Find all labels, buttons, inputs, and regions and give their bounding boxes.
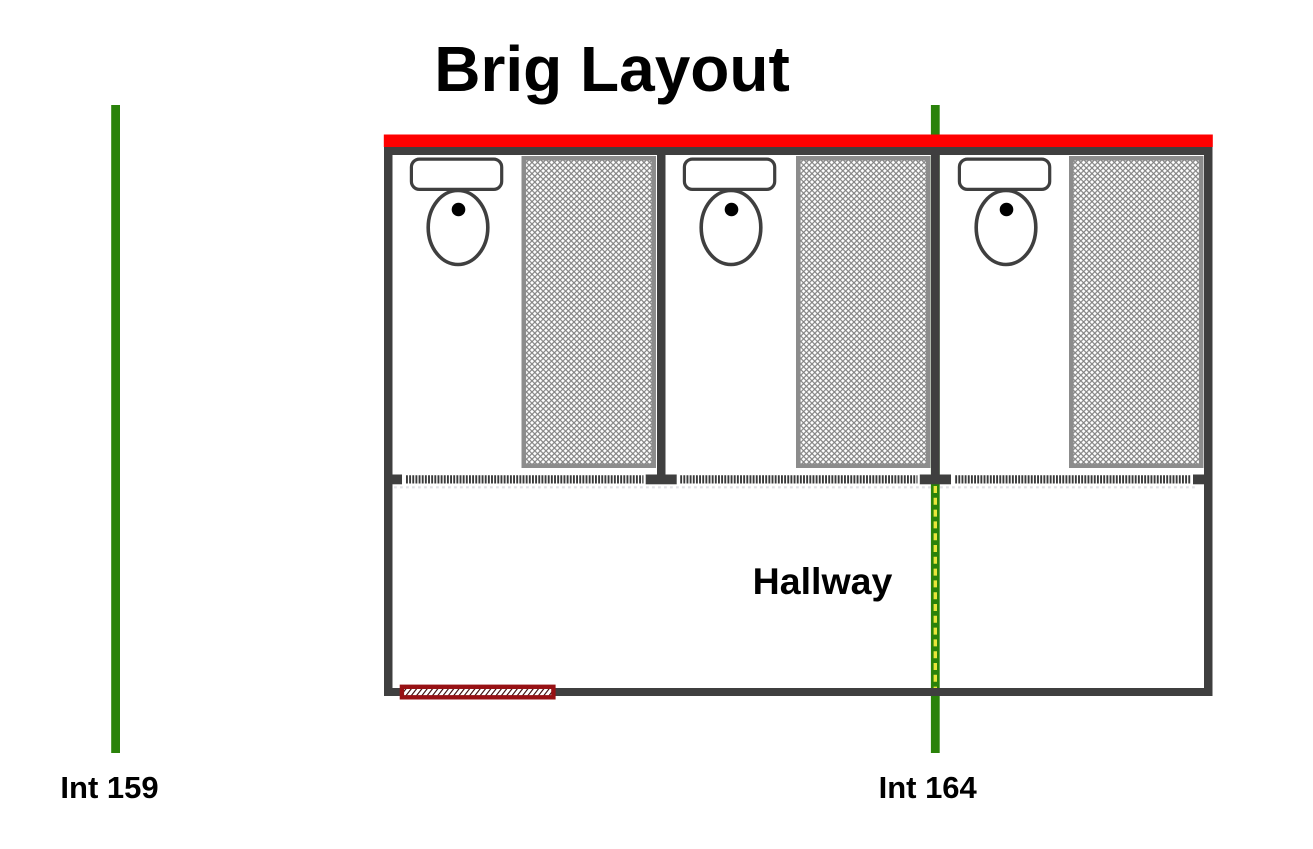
svg-text:Int 164: Int 164	[879, 770, 978, 805]
svg-text:Int 159: Int 159	[60, 770, 158, 805]
svg-text:Brig Layout: Brig Layout	[434, 33, 790, 105]
svg-text:Hallway: Hallway	[753, 560, 893, 602]
